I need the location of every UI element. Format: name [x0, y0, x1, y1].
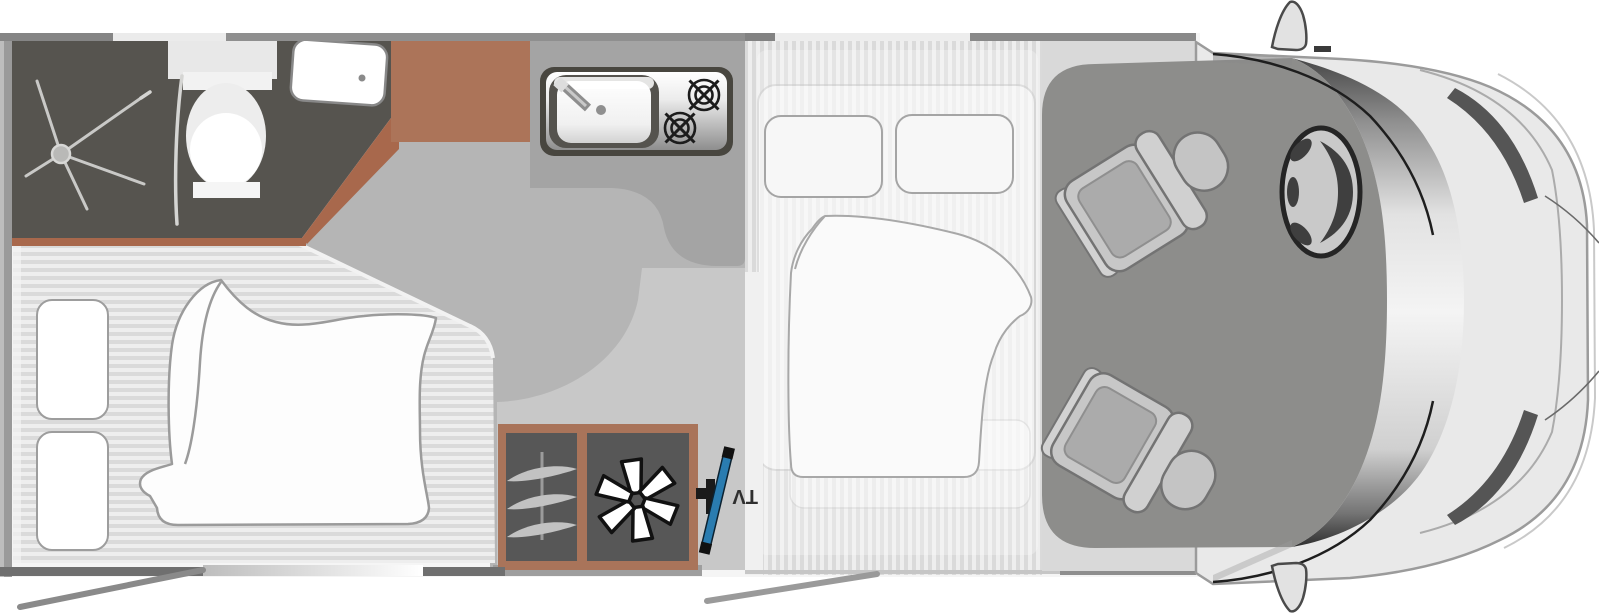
svg-text:TV: TV — [732, 485, 758, 507]
